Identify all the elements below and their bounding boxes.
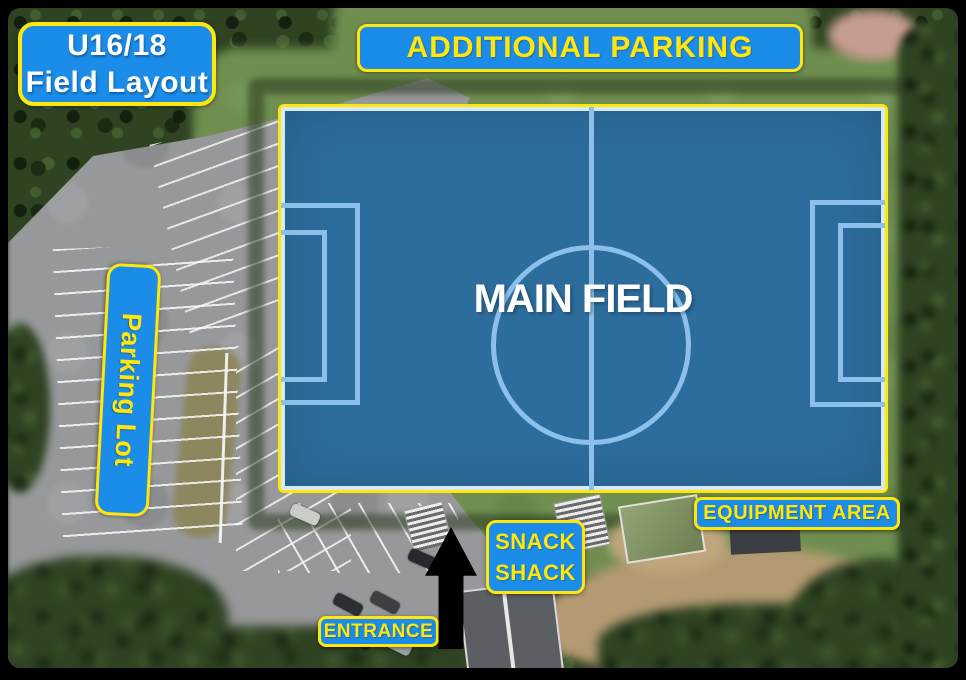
title-card: U16/18 Field Layout (18, 22, 216, 106)
entrance-label: ENTRANCE (318, 616, 439, 647)
title-line1: U16/18 (67, 27, 167, 64)
center-circle (491, 245, 691, 445)
satellite-photo: MAIN FIELD U16/18 Field Layout ADDITIONA… (8, 8, 958, 668)
additional-parking-label: ADDITIONAL PARKING (357, 24, 803, 72)
main-field-label: MAIN FIELD (281, 277, 885, 322)
snack-line1: SNACK (495, 526, 576, 557)
trees-area (898, 23, 958, 668)
title-line2: Field Layout (26, 64, 209, 101)
snack-shack-label: SNACK SHACK (486, 520, 585, 594)
equipment-structure (618, 494, 706, 564)
equipment-area-label: EQUIPMENT AREA (694, 497, 900, 530)
roof-ridge (502, 587, 517, 668)
main-field-overlay: MAIN FIELD (278, 104, 888, 493)
snack-line2: SHACK (495, 557, 576, 588)
